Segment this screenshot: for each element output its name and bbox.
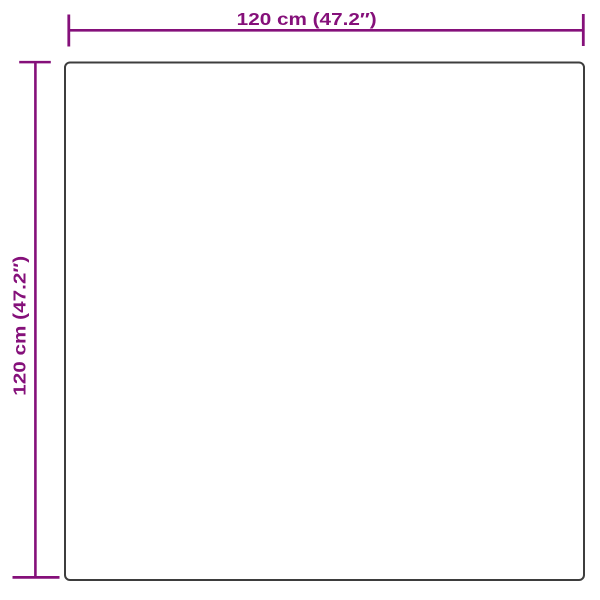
svg-text:120 cm (47.2″): 120 cm (47.2″) <box>237 9 377 29</box>
svg-text:120 cm (47.2″): 120 cm (47.2″) <box>9 256 29 396</box>
